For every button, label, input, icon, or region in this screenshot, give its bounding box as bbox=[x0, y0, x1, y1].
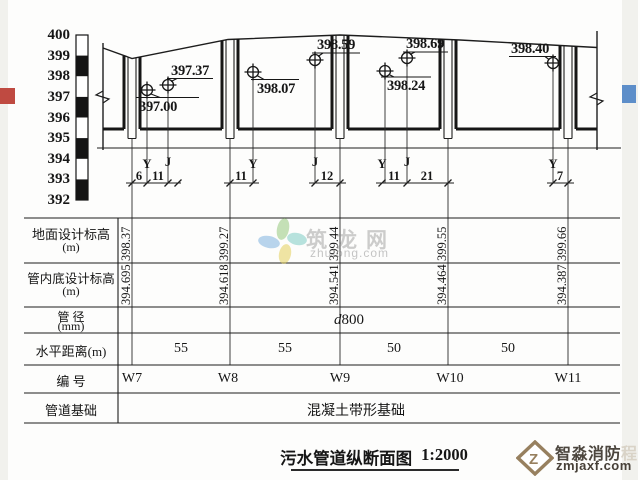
manhole-id: W11 bbox=[548, 371, 588, 387]
scale-label: 396 bbox=[36, 109, 70, 127]
scale-label: 397 bbox=[36, 88, 70, 106]
scale-label: 400 bbox=[36, 26, 70, 44]
invert-elevation-value: 394.541 bbox=[328, 264, 341, 305]
zhulong-pinwheel-icon bbox=[258, 218, 308, 264]
scale-label: 399 bbox=[36, 47, 70, 65]
scale-label: 393 bbox=[36, 170, 70, 188]
distance-value: 55 bbox=[166, 341, 196, 357]
distance-value: 50 bbox=[493, 341, 523, 357]
distance-value: 50 bbox=[379, 341, 409, 357]
elevation-label: 398.40 bbox=[511, 41, 549, 58]
ground-elevation-value: 399.66 bbox=[556, 227, 569, 261]
distance-value: 55 bbox=[270, 341, 300, 357]
dimension-lines bbox=[126, 180, 574, 187]
offset-dimension: 11 bbox=[148, 169, 168, 184]
scale-label: 394 bbox=[36, 150, 70, 168]
manhole-id: W7 bbox=[112, 371, 152, 387]
vendor-logo-url: zmjaxf.com bbox=[556, 458, 632, 473]
invert-elevation-value: 394.695 bbox=[120, 264, 133, 305]
elevation-label: 397.00 bbox=[139, 99, 177, 116]
elevation-label: 398.59 bbox=[317, 37, 355, 54]
offset-dimension: 6 bbox=[129, 169, 149, 184]
scale-label: 395 bbox=[36, 129, 70, 147]
row-header-invert-unit: (m) bbox=[24, 284, 118, 299]
drawing-scale: 1:2000 bbox=[421, 445, 468, 469]
pipe-diameter-value: d800 bbox=[324, 312, 374, 329]
manhole-id: W8 bbox=[208, 371, 248, 387]
invert-elevation-value: 394.464 bbox=[436, 264, 449, 305]
offset-dimension: 21 bbox=[417, 169, 437, 184]
manhole-id: W9 bbox=[320, 371, 360, 387]
offset-dimension: 12 bbox=[317, 169, 337, 184]
ground-elevation-value: 399.55 bbox=[436, 227, 449, 261]
elevation-label: 398.24 bbox=[387, 78, 425, 95]
connection-mark: J bbox=[400, 155, 414, 170]
scale-label: 392 bbox=[36, 191, 70, 209]
svg-text:Z: Z bbox=[529, 451, 538, 468]
ground-elevation-value: 399.27 bbox=[218, 227, 231, 261]
offset-dimension: 11 bbox=[231, 169, 251, 184]
elevation-label: 398.07 bbox=[257, 81, 295, 98]
ground-elevation-value: 398.37 bbox=[120, 227, 133, 261]
invert-elevation-value: 394.387 bbox=[556, 264, 569, 305]
row-header-ground-unit: (m) bbox=[24, 240, 118, 255]
sewer-profile-drawing-page: 400 399 398 397 396 395 394 393 392 397.… bbox=[0, 0, 640, 480]
drawing-title-text: 污水管道纵断面图 bbox=[280, 445, 412, 469]
manhole-id: W10 bbox=[430, 371, 470, 387]
row-header-foundation: 管道基础 bbox=[24, 400, 118, 419]
connection-mark: J bbox=[308, 155, 322, 170]
elevation-scale-bar bbox=[76, 35, 88, 200]
watermark-url: zhulong.com bbox=[310, 246, 389, 260]
row-header-id: 编 号 bbox=[24, 371, 118, 390]
drawing-title: 污水管道纵断面图 1:2000 bbox=[254, 445, 494, 469]
offset-dimension: 7 bbox=[550, 169, 570, 184]
scale-label: 398 bbox=[36, 67, 70, 85]
title-underline bbox=[291, 469, 459, 471]
connection-mark: J bbox=[161, 155, 175, 170]
row-header-diameter-unit: (mm) bbox=[24, 319, 118, 334]
offset-dimension: 11 bbox=[384, 169, 404, 184]
elevation-label: 397.37 bbox=[171, 63, 209, 80]
foundation-value: 混凝土带形基础 bbox=[296, 400, 416, 420]
invert-elevation-value: 394.618 bbox=[218, 264, 231, 305]
row-header-distance: 水平距离(m) bbox=[24, 341, 118, 360]
zmjaxf-logo-icon: Z bbox=[516, 440, 554, 476]
elevation-label: 398.69 bbox=[406, 36, 444, 53]
